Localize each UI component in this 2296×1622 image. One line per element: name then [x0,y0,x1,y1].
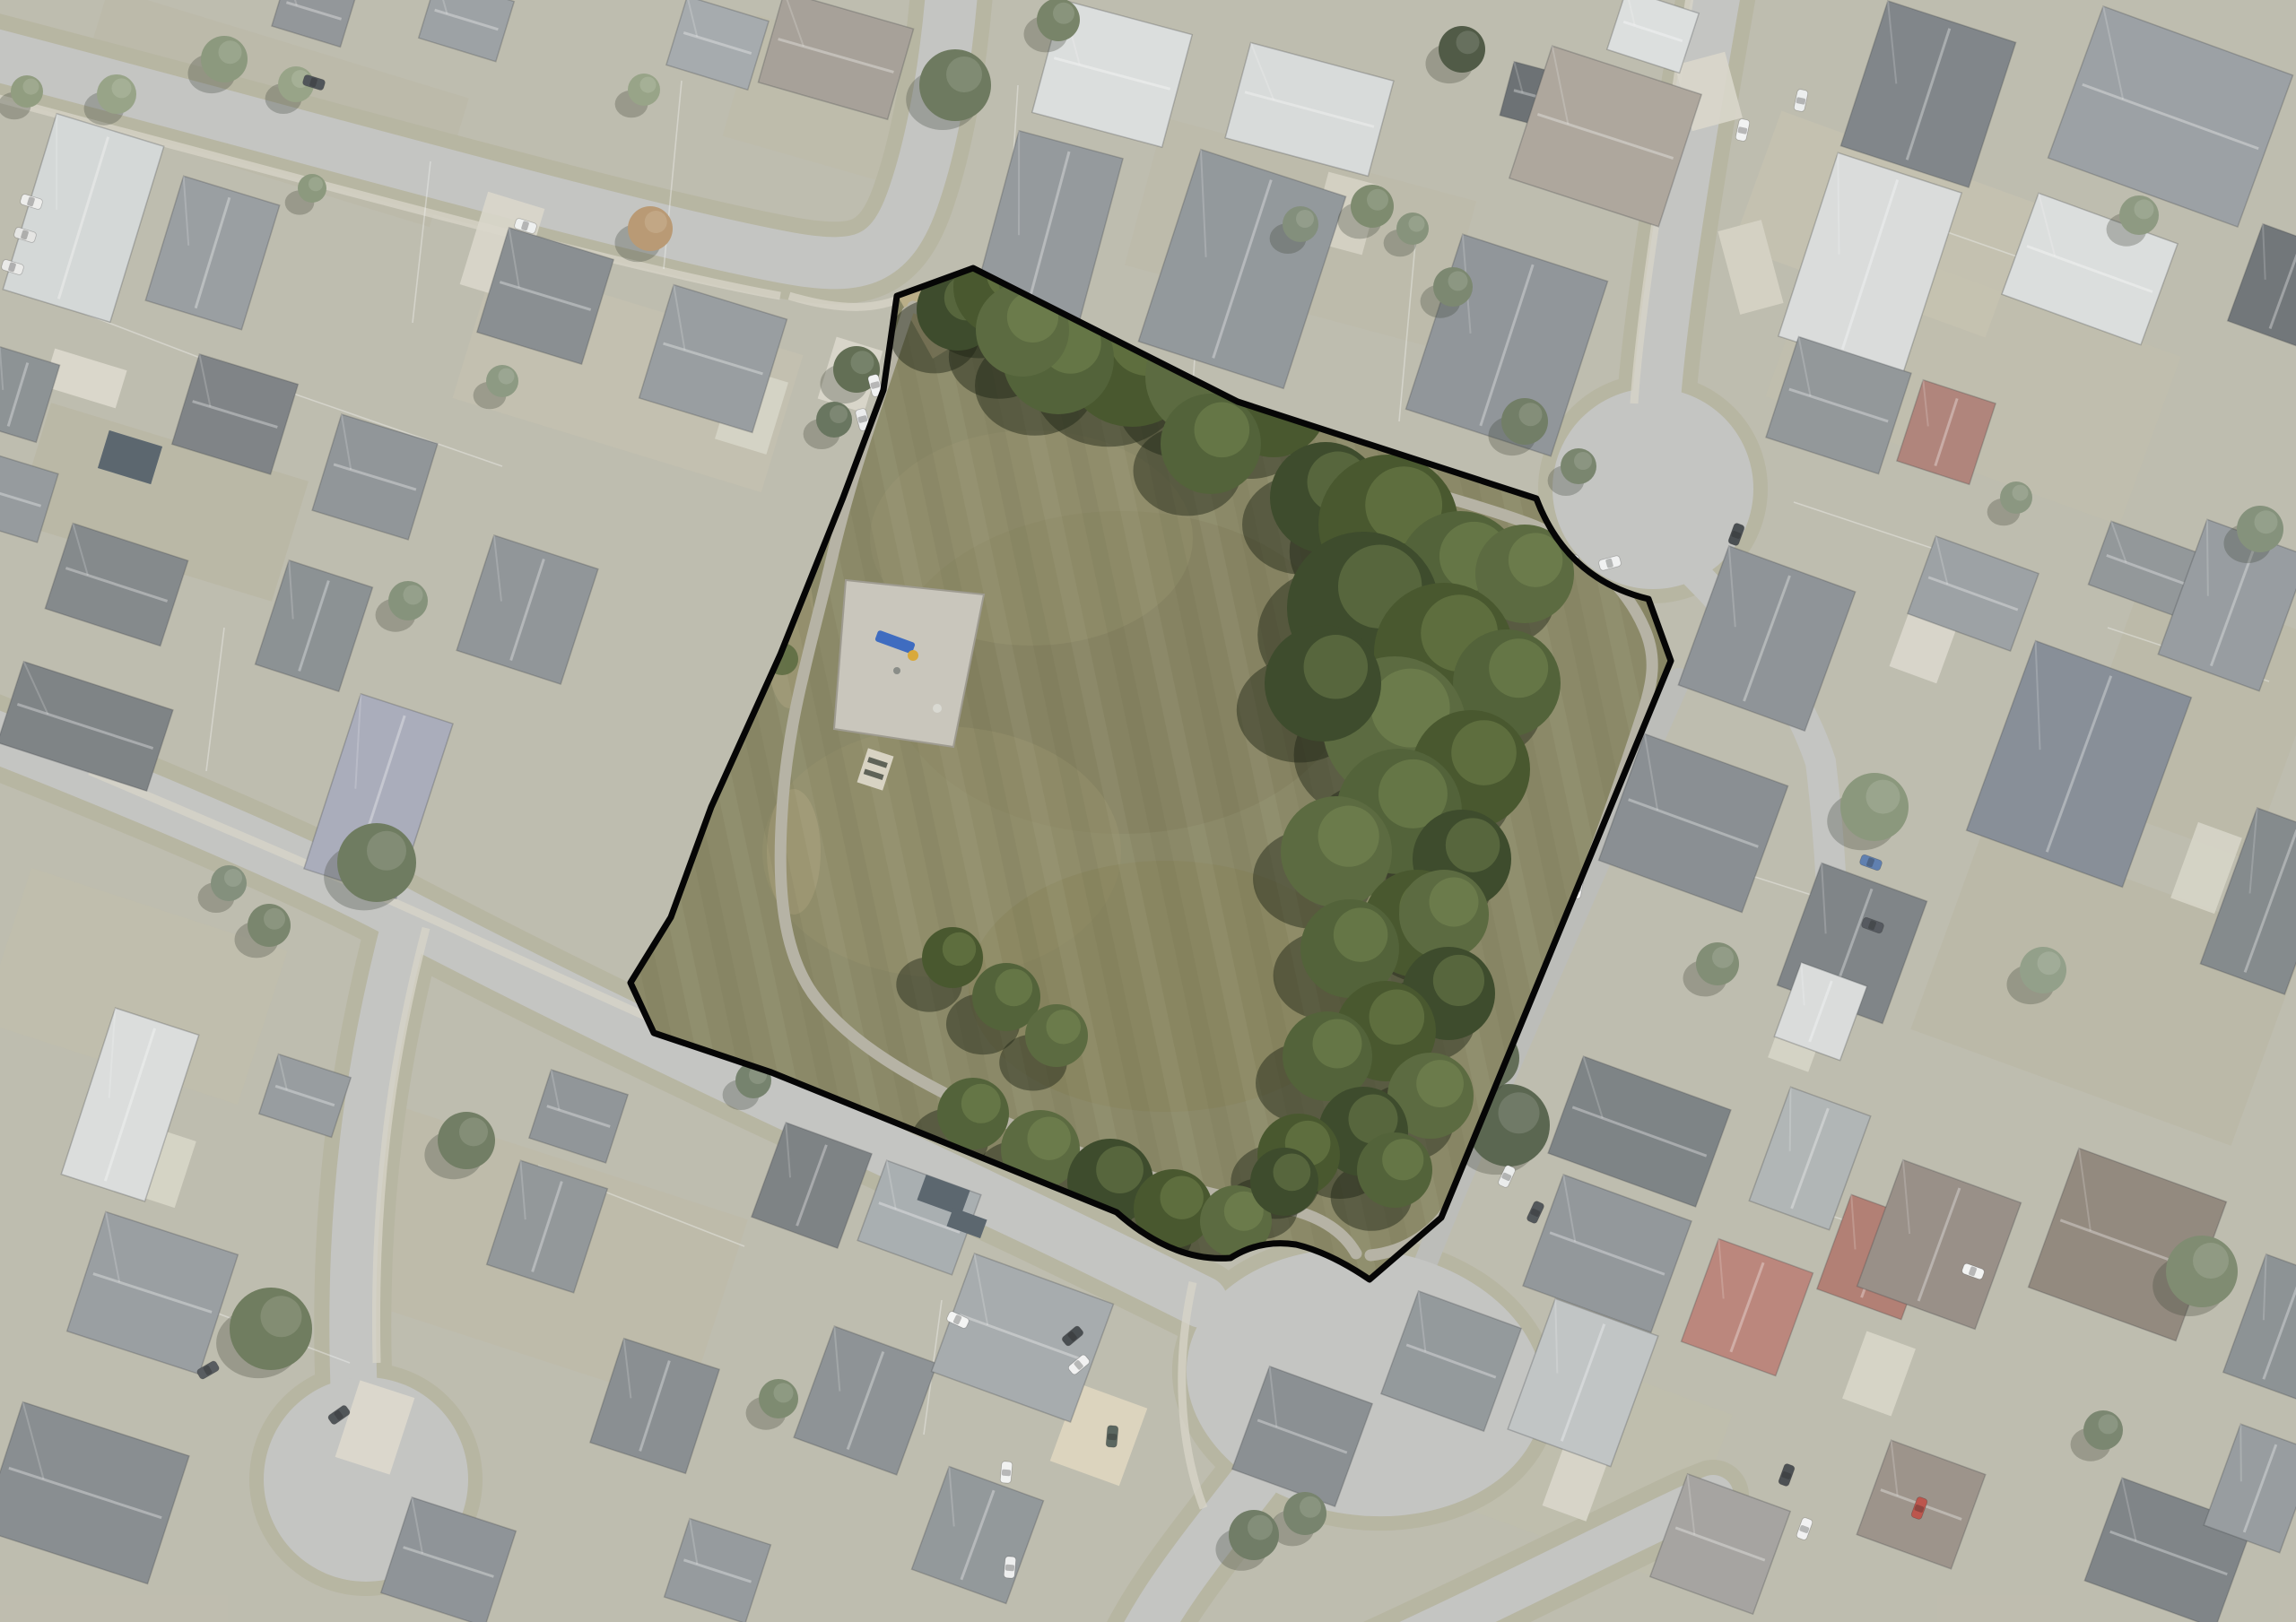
aerial-map-container [0,0,2296,1622]
aerial-photo-map [0,0,2296,1622]
